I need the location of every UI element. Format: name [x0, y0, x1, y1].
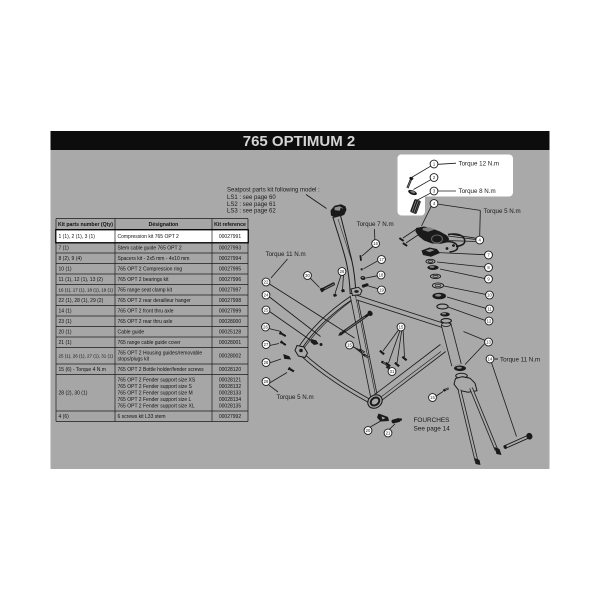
svg-text:26: 26 [340, 269, 345, 274]
svg-text:765 OPT 2 Fender support size: 765 OPT 2 Fender support size XS [118, 377, 196, 383]
svg-text:765 OPT 2 rear derailleur hang: 765 OPT 2 rear derailleur hanger [118, 298, 192, 304]
svg-text:00028001: 00028001 [219, 340, 241, 346]
svg-text:31: 31 [390, 369, 395, 374]
svg-text:LS2 : see page 61: LS2 : see page 61 [227, 202, 276, 208]
svg-text:22: 22 [264, 280, 269, 285]
svg-text:Torque 11 N.m: Torque 11 N.m [500, 356, 540, 363]
svg-text:LS1 : see page 60: LS1 : see page 60 [227, 195, 276, 201]
svg-text:765 OPT 2 Compression ring: 765 OPT 2 Compression ring [118, 266, 183, 272]
svg-text:12: 12 [487, 319, 492, 324]
svg-text:8 (2), 9 (4): 8 (2), 9 (4) [59, 256, 83, 262]
svg-text:14 (1): 14 (1) [59, 308, 72, 314]
svg-text:15: 15 [347, 343, 352, 348]
svg-text:765 OPT 2 Bottle holder/fender: 765 OPT 2 Bottle holder/fender screws [118, 367, 205, 373]
svg-text:10: 10 [487, 293, 492, 298]
svg-text:Seatpost parts kit following m: Seatpost parts kit following model : [227, 188, 320, 194]
svg-text:6 screws kit L33 stem: 6 screws kit L33 stem [118, 414, 166, 420]
svg-text:22 (1), 28 (1), 29 (2): 22 (1), 28 (1), 29 (2) [59, 298, 104, 304]
svg-text:00028120: 00028120 [219, 367, 241, 373]
svg-text:1 (1), 2 (1), 3 (1): 1 (1), 2 (1), 3 (1) [59, 234, 96, 240]
svg-text:15 (6) - Torque 4 N.m: 15 (6) - Torque 4 N.m [59, 367, 106, 373]
svg-text:24: 24 [264, 293, 269, 298]
svg-text:00027995: 00027995 [219, 266, 241, 272]
svg-text:00028132: 00028132 [219, 384, 241, 390]
svg-text:765 OPT 2 Housing guides/remov: 765 OPT 2 Housing guides/removable [118, 350, 203, 356]
svg-text:23 (1): 23 (1) [59, 319, 72, 325]
svg-text:29: 29 [264, 379, 269, 384]
svg-text:stops/plugs kit: stops/plugs kit [118, 357, 150, 363]
svg-text:Torque 8 N.m: Torque 8 N.m [459, 188, 496, 195]
svg-text:26: 26 [263, 325, 268, 330]
svg-text:Torque 5 N.m: Torque 5 N.m [277, 394, 314, 401]
svg-text:765 OPT 2 Fender support size: 765 OPT 2 Fender support size S [118, 384, 193, 390]
svg-text:11 (1), 12 (1), 13 (2): 11 (1), 12 (1), 13 (2) [59, 277, 104, 283]
svg-text:00028134: 00028134 [219, 397, 241, 403]
svg-text:00028135: 00028135 [219, 404, 241, 410]
svg-text:00028133: 00028133 [219, 390, 241, 396]
svg-text:Compression kit 765 OPT 2: Compression kit 765 OPT 2 [118, 234, 180, 240]
svg-text:20 (1): 20 (1) [59, 329, 72, 335]
svg-text:See page 14: See page 14 [414, 426, 451, 433]
svg-text:Torque 11 N.m: Torque 11 N.m [266, 251, 306, 258]
svg-text:00027996: 00027996 [219, 277, 241, 283]
svg-text:Cable guide: Cable guide [118, 329, 145, 335]
svg-text:15: 15 [399, 325, 404, 330]
svg-text:13: 13 [486, 340, 491, 345]
svg-text:Torque 7 N.m: Torque 7 N.m [357, 221, 394, 228]
svg-text:00027991: 00027991 [219, 234, 241, 240]
svg-text:00028000: 00028000 [219, 319, 241, 325]
svg-text:20: 20 [366, 428, 371, 433]
svg-text:Stem cable guide 765 OPT 2: Stem cable guide 765 OPT 2 [118, 245, 182, 251]
svg-text:00027992: 00027992 [219, 414, 241, 420]
svg-text:00027999: 00027999 [219, 308, 241, 314]
svg-text:765 range cable guide cover: 765 range cable guide cover [118, 340, 181, 346]
svg-text:14: 14 [488, 357, 493, 362]
svg-text:00027997: 00027997 [219, 287, 241, 293]
svg-text:21: 21 [386, 431, 391, 436]
svg-text:16 (1), 17 (1), 18 (1), 19 (1): 16 (1), 17 (1), 18 (1), 19 (1) [59, 287, 114, 292]
svg-text:765 OPT 2 Fender support size: 765 OPT 2 Fender support size M [118, 390, 193, 396]
svg-text:19: 19 [379, 288, 384, 293]
svg-text:LS3 : see page 62: LS3 : see page 62 [227, 209, 276, 215]
svg-text:7 (1): 7 (1) [59, 245, 70, 251]
svg-text:00028002: 00028002 [219, 353, 241, 359]
svg-text:765 OPTIMUM 2: 765 OPTIMUM 2 [243, 133, 356, 150]
svg-text:25: 25 [264, 308, 269, 313]
svg-text:FOURCHES: FOURCHES [414, 417, 450, 424]
svg-text:25 (1), 26 (1), 27 (1), 31 (1): 25 (1), 26 (1), 27 (1), 31 (1) [59, 353, 114, 358]
svg-text:17: 17 [379, 257, 384, 262]
svg-text:16: 16 [373, 241, 378, 246]
svg-text:765 OPT 2 rear thru axle: 765 OPT 2 rear thru axle [118, 319, 173, 325]
svg-text:15: 15 [430, 395, 435, 400]
svg-text:00025128: 00025128 [219, 329, 241, 335]
svg-text:11: 11 [487, 307, 492, 312]
svg-text:Kit parts number (Qty): Kit parts number (Qty) [58, 222, 113, 228]
svg-text:30: 30 [305, 273, 310, 278]
svg-text:00028121: 00028121 [219, 377, 241, 383]
svg-text:Kit reference: Kit reference [214, 222, 246, 228]
svg-text:765 OPT 2 Fender support size: 765 OPT 2 Fender support size L [118, 397, 192, 403]
svg-text:00027998: 00027998 [219, 298, 241, 304]
svg-text:4 (6): 4 (6) [59, 414, 70, 420]
svg-text:765 OPT 2 front thru axle: 765 OPT 2 front thru axle [118, 308, 174, 314]
svg-text:27: 27 [264, 342, 269, 347]
svg-text:765 range seat clamp kit: 765 range seat clamp kit [118, 287, 173, 293]
svg-text:10 (1): 10 (1) [59, 266, 72, 272]
svg-text:28: 28 [264, 360, 269, 365]
svg-text:765 OPT 2 bearings kit: 765 OPT 2 bearings kit [118, 277, 170, 283]
svg-text:Désignation: Désignation [149, 222, 179, 228]
svg-text:00027994: 00027994 [219, 256, 241, 262]
svg-text:18: 18 [379, 273, 384, 278]
svg-text:765 OPT 2 Fender support size: 765 OPT 2 Fender support size XL [118, 404, 195, 410]
svg-text:21 (1): 21 (1) [59, 340, 72, 346]
svg-text:28 (2), 30 (1): 28 (2), 30 (1) [59, 390, 88, 396]
svg-text:Torque 12 N.m: Torque 12 N.m [459, 161, 500, 168]
svg-text:Spacers kit - 2x5 mm - 4x10 mm: Spacers kit - 2x5 mm - 4x10 mm [118, 256, 190, 262]
svg-text:00027993: 00027993 [219, 245, 241, 251]
svg-text:Torque 5 N.m: Torque 5 N.m [484, 208, 521, 215]
